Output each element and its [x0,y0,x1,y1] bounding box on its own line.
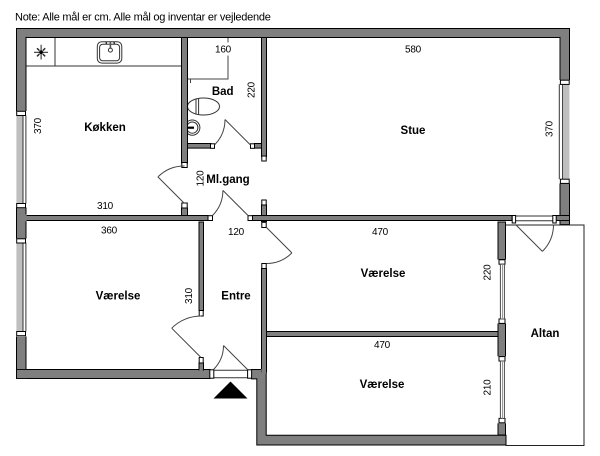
svg-text:Entre: Entre [221,291,250,303]
svg-text:220: 220 [247,81,258,98]
svg-text:360: 360 [101,226,118,237]
svg-text:Køkken: Køkken [84,122,126,134]
svg-text:Stue: Stue [401,125,426,137]
svg-text:Værelse: Værelse [360,379,405,391]
svg-text:120: 120 [228,227,245,238]
svg-text:580: 580 [405,45,422,56]
svg-text:Note: Alle mål er cm. Alle mål: Note: Alle mål er cm. Alle mål og invent… [15,12,271,24]
svg-text:470: 470 [374,340,391,351]
svg-text:470: 470 [372,227,389,238]
svg-text:210: 210 [482,379,493,396]
svg-text:Altan: Altan [531,328,560,340]
svg-text:370: 370 [33,117,44,134]
svg-text:370: 370 [545,120,556,137]
svg-text:220: 220 [482,264,493,281]
svg-text:120: 120 [196,170,207,187]
svg-text:Værelse: Værelse [361,268,406,280]
svg-text:310: 310 [97,201,114,212]
svg-text:Ml.gang: Ml.gang [206,174,249,186]
svg-text:310: 310 [184,287,195,304]
svg-text:Bad: Bad [212,86,234,98]
svg-text:Værelse: Værelse [96,291,141,303]
svg-text:160: 160 [215,45,232,56]
